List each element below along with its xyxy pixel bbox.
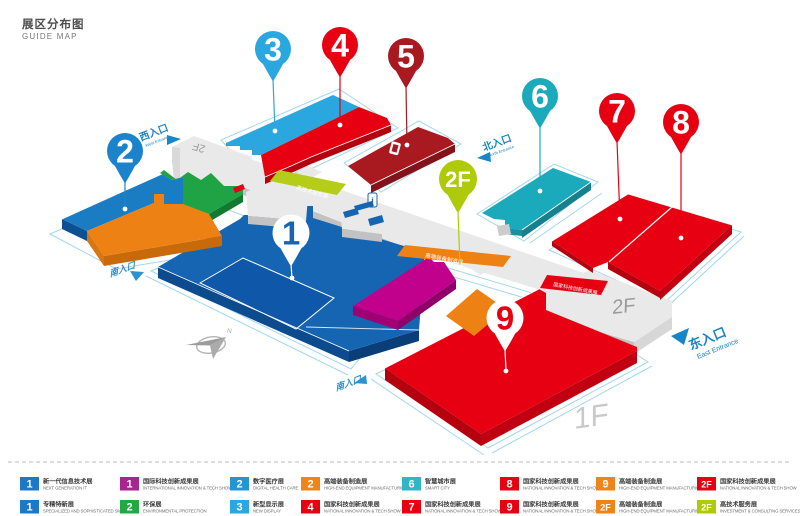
svg-text:高端装备制造展: 高端装备制造展 (619, 478, 663, 486)
svg-text:HIGH-END EQUIPMENT MANUFACTURI: HIGH-END EQUIPMENT MANUFACTURING (619, 486, 703, 491)
svg-text:1: 1 (282, 215, 300, 252)
svg-text:NEW DISPLAY: NEW DISPLAY (253, 509, 281, 514)
svg-text:NATIONAL INNOVATION & TECH SHO: NATIONAL INNOVATION & TECH SHOW (523, 486, 601, 491)
svg-text:HIGH-END EQUIPMENT MANUFACTURI: HIGH-END EQUIPMENT MANUFACTURING (324, 486, 408, 491)
svg-text:SMART CITY: SMART CITY (425, 486, 450, 491)
svg-text:高技术服务展: 高技术服务展 (720, 501, 758, 509)
svg-text:9: 9 (602, 479, 608, 491)
svg-text:4: 4 (307, 502, 314, 514)
svg-text:2F: 2F (701, 503, 712, 513)
svg-text:5: 5 (397, 38, 415, 74)
svg-text:数字医疗展: 数字医疗展 (253, 478, 285, 486)
svg-text:8: 8 (672, 104, 690, 140)
svg-text:2: 2 (236, 479, 242, 491)
svg-text:INVESTMENT & CONSULTING SERVIC: INVESTMENT & CONSULTING SERVICES (720, 509, 800, 514)
svg-text:SPECIALIZED AND SOPHISTICATED: SPECIALIZED AND SOPHISTICATED SMES (43, 509, 127, 514)
svg-text:2: 2 (116, 133, 134, 169)
svg-text:NATIONAL INNOVATION & TECH SHO: NATIONAL INNOVATION & TECH SHOW (720, 486, 798, 491)
svg-text:INTERNATIONAL INNOVATION & TEC: INTERNATIONAL INNOVATION & TECH SHOW (143, 486, 233, 491)
svg-text:国家科技创新成果展: 国家科技创新成果展 (523, 478, 579, 486)
svg-text:2F: 2F (612, 294, 636, 319)
svg-text:3: 3 (236, 502, 242, 514)
svg-text:7: 7 (608, 93, 626, 129)
svg-text:2F: 2F (701, 480, 712, 490)
svg-text:NEXT GENERATION IT: NEXT GENERATION IT (43, 486, 87, 491)
svg-text:专精特新展: 专精特新展 (43, 501, 75, 509)
svg-text:新型显示展: 新型显示展 (253, 501, 285, 509)
svg-text:国际科技创新成果展: 国际科技创新成果展 (143, 478, 199, 486)
svg-text:环保展: 环保展 (143, 501, 162, 509)
svg-text:NATIONAL INNOVATION & TECH SHO: NATIONAL INNOVATION & TECH SHOW (324, 509, 402, 514)
svg-text:9: 9 (506, 502, 512, 514)
svg-text:高端装备制造展: 高端装备制造展 (619, 501, 663, 509)
svg-text:DIGITAL HEALTH CARE: DIGITAL HEALTH CARE (253, 486, 299, 491)
svg-text:高端装备制造展: 高端装备制造展 (324, 478, 368, 486)
svg-text:ENVIRONMENTAL PROTECTION: ENVIRONMENTAL PROTECTION (143, 509, 207, 514)
svg-text:1: 1 (26, 479, 32, 491)
svg-text:HIGH-END EQUIPMENT MANUFACTURI: HIGH-END EQUIPMENT MANUFACTURING (619, 509, 703, 514)
svg-text:国家科技创新成果展: 国家科技创新成果展 (324, 501, 380, 509)
svg-text:1: 1 (126, 479, 132, 491)
svg-text:NATIONAL INNOVATION & TECH SHO: NATIONAL INNOVATION & TECH SHOW (425, 509, 503, 514)
svg-text:1: 1 (26, 502, 32, 514)
svg-text:8: 8 (506, 479, 512, 491)
svg-text:2: 2 (126, 502, 132, 514)
svg-text:NATIONAL INNOVATION & TECH SHO: NATIONAL INNOVATION & TECH SHOW (523, 509, 601, 514)
svg-text:GUIDE MAP: GUIDE MAP (22, 32, 78, 41)
svg-text:7: 7 (408, 502, 414, 514)
svg-text:N: N (227, 328, 232, 335)
svg-text:9: 9 (496, 300, 514, 337)
svg-text:2F: 2F (600, 503, 611, 513)
svg-text:3: 3 (264, 31, 282, 67)
svg-text:智慧城市展: 智慧城市展 (424, 478, 457, 486)
svg-text:国家科技创新成果展: 国家科技创新成果展 (720, 478, 776, 486)
svg-text:国家科技创新成果展: 国家科技创新成果展 (523, 501, 579, 509)
svg-text:6: 6 (408, 479, 414, 491)
svg-text:新一代信息技术展: 新一代信息技术展 (43, 478, 93, 486)
svg-text:6: 6 (531, 78, 549, 114)
svg-text:国家科技创新成果展: 国家科技创新成果展 (425, 501, 481, 509)
svg-text:展区分布图: 展区分布图 (21, 17, 85, 31)
svg-text:4: 4 (331, 27, 349, 63)
svg-text:2: 2 (307, 479, 313, 491)
svg-text:1F: 1F (574, 398, 609, 436)
svg-text:2F: 2F (445, 167, 471, 192)
